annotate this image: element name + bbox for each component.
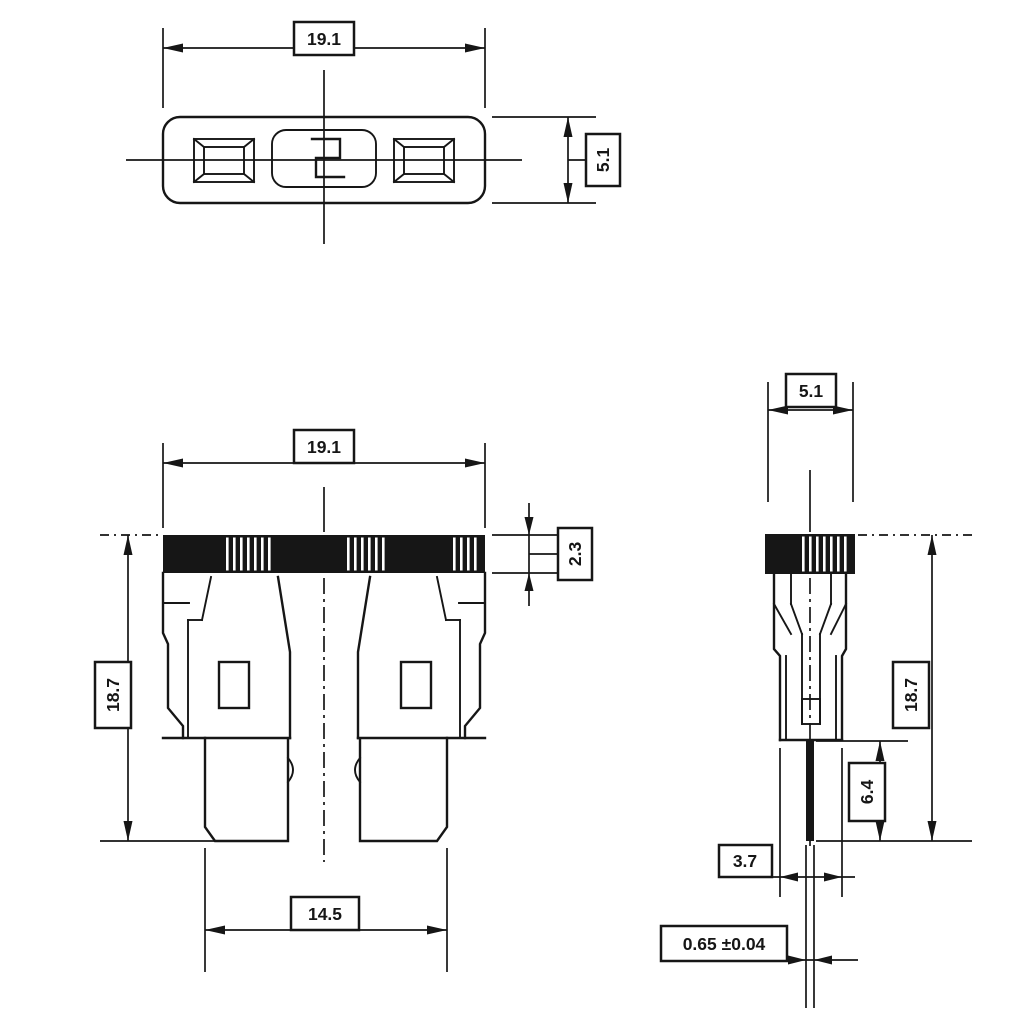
drawing-canvas: 19.1 5.1: [0, 0, 1024, 1024]
dim-label: 18.7: [103, 678, 123, 712]
left-window: [219, 662, 249, 708]
blade-terminals: [205, 738, 447, 841]
housing-body: [163, 573, 485, 738]
dim-lower-body-depth: 3.7: [719, 748, 855, 897]
dim-label: 5.1: [593, 148, 613, 173]
dim-label: 18.7: [901, 678, 921, 712]
dim-terminal-span: 14.5: [205, 848, 447, 972]
dim-front-height: 18.7: [95, 535, 215, 841]
dim-label: 2.3: [565, 542, 585, 567]
dim-label: 14.5: [308, 904, 342, 924]
dim-label: 3.7: [733, 851, 757, 871]
dim-label: 19.1: [307, 437, 341, 457]
dim-label: 0.65 ±0.04: [683, 934, 766, 954]
dim-label: 5.1: [799, 381, 824, 401]
right-window: [401, 662, 431, 708]
gap-edge-right: [358, 577, 370, 738]
fuse-cap-band: [163, 535, 485, 573]
front-view-part: [163, 487, 485, 862]
dim-label: 19.1: [307, 29, 341, 49]
front-view: 19.1 18.7 2.3: [95, 430, 592, 972]
slot-window: [802, 699, 820, 724]
fuse-dimension-drawing: 19.1 5.1: [0, 0, 1024, 1024]
top-view-part: [126, 70, 522, 244]
fuse-element: [312, 139, 344, 177]
dim-cap-height: 2.3: [492, 503, 592, 606]
top-view: 19.1 5.1: [126, 22, 620, 244]
side-view: 5.1 18.7 6.4 3.7: [661, 374, 972, 1008]
dim-label: 6.4: [857, 780, 877, 805]
gap-edge-left: [278, 577, 290, 738]
dim-blade-length: 6.4: [816, 741, 908, 841]
dim-side-height: 18.7: [816, 535, 972, 841]
